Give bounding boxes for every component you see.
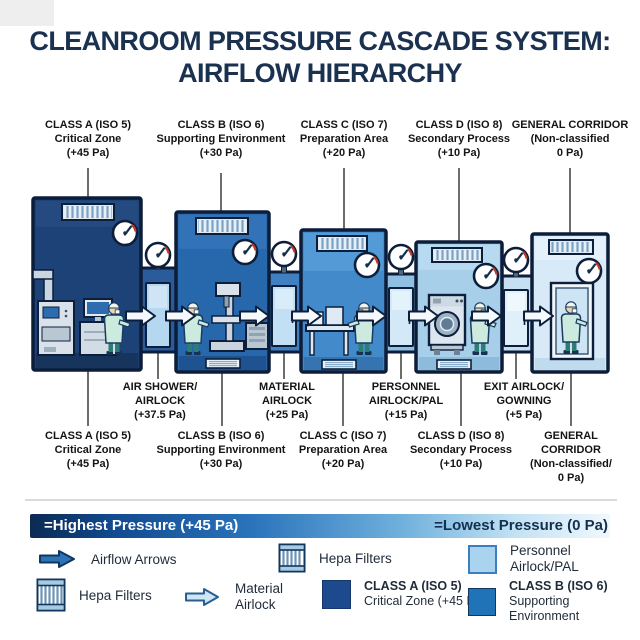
hepa-filter-icon — [278, 543, 306, 573]
pressure-gauge-icon — [577, 259, 601, 283]
airlock-label-exit: EXIT AIRLOCK/ GOWNING (+5 Pa) — [484, 380, 564, 422]
pressure-gauge-icon — [504, 248, 528, 272]
pressure-gauge-icon — [146, 243, 170, 267]
airlock-label-material: MATERIAL AIRLOCK (+25 Pa) — [259, 380, 315, 422]
personnel-airlock-swatch — [468, 545, 497, 574]
gradient-label-highest: =Highest Pressure (+45 Pa) — [44, 514, 238, 538]
floor-vent-icon — [206, 359, 240, 368]
pressure-gauge-icon — [272, 242, 296, 266]
hepa-filter-icon — [196, 218, 248, 234]
top-label-class-a: CLASS A (ISO 5) Critical Zone (+45 Pa) — [45, 118, 131, 160]
pressure-gauge-icon — [389, 245, 413, 269]
hepa-filter-icon — [36, 578, 66, 612]
top-label-class-d: CLASS D (ISO 8) Secondary Process (+10 P… — [408, 118, 510, 160]
legend-item-class-b: CLASS B (ISO 6) Supporting Environment — [468, 579, 640, 624]
hepa-filter-icon — [62, 204, 114, 220]
floor-vent-icon — [322, 360, 356, 369]
gradient-label-lowest: =Lowest Pressure (0 Pa) — [434, 514, 608, 538]
pressure-gauge-icon — [474, 264, 498, 288]
equipment-washer — [429, 295, 465, 355]
equipment-filling-machine — [210, 283, 244, 351]
top-label-class-c: CLASS C (ISO 7) Preparation Area (+20 Pa… — [300, 118, 388, 160]
legend-item-class-a: CLASS A (ISO 5) Critical Zone (+45 Pa) — [322, 579, 486, 609]
bottom-label-class-c: CLASS C (ISO 7) Preparation Area (+20 Pa… — [299, 429, 387, 471]
bottom-label-class-b: CLASS B (ISO 6) Supporting Environment (… — [157, 429, 286, 471]
floor-vent-icon — [437, 360, 471, 369]
airflow-arrow-icon — [38, 549, 78, 569]
legend-divider — [25, 499, 617, 501]
legend-item-hepa-filters-1: Hepa Filters — [36, 578, 152, 612]
hepa-filter-icon — [432, 248, 482, 262]
title-line-2: AIRFLOW HIERARCHY — [0, 58, 640, 90]
page-title: CLEANROOM PRESSURE CASCADE SYSTEM: AIRFL… — [0, 26, 640, 89]
pressure-gauge-icon — [113, 221, 137, 245]
legend-item-material-airlock: Material Airlock — [184, 581, 283, 613]
class-b-swatch — [468, 588, 496, 616]
equipment-vented-crate — [246, 323, 268, 349]
pressure-gauge-icon — [355, 253, 379, 277]
airlock-label-air-shower: AIR SHOWER/ AIRLOCK (+37.5 Pa) — [123, 380, 198, 422]
bottom-label-class-d: CLASS D (ISO 8) Secondary Process (+10 P… — [410, 429, 512, 471]
legend-item-hepa-filters-2: Hepa Filters — [278, 543, 392, 573]
class-a-swatch — [322, 580, 351, 609]
top-label-class-b: CLASS B (ISO 6) Supporting Environment (… — [157, 118, 286, 160]
airlock-label-personnel: PERSONNEL AIRLOCK/PAL (+15 Pa) — [369, 380, 443, 422]
bottom-label-class-a: CLASS A (ISO 5) Critical Zone (+45 Pa) — [45, 429, 131, 471]
top-label-corridor: GENERAL CORRIDOR (Non-classified 0 Pa) — [512, 118, 629, 160]
corner-artifact — [0, 0, 54, 26]
pressure-gauge-icon — [233, 240, 257, 264]
legend-item-airflow-arrows: Airflow Arrows — [38, 549, 177, 569]
legend-item-personnel-airlock: Personnel Airlock/PAL — [468, 543, 579, 575]
title-line-1: CLEANROOM PRESSURE CASCADE SYSTEM: — [0, 26, 640, 58]
cleanroom-infographic: CLEANROOM PRESSURE CASCADE SYSTEM: AIRFL… — [0, 0, 640, 640]
bottom-label-corridor: GENERAL CORRIDOR (Non-classified/ 0 Pa) — [530, 429, 612, 485]
pressure-gradient-bar: =Highest Pressure (+45 Pa) =Lowest Press… — [30, 514, 610, 538]
hepa-filter-icon — [317, 236, 367, 251]
material-airlock-arrow-icon — [184, 587, 222, 607]
hepa-filter-icon — [549, 240, 593, 254]
